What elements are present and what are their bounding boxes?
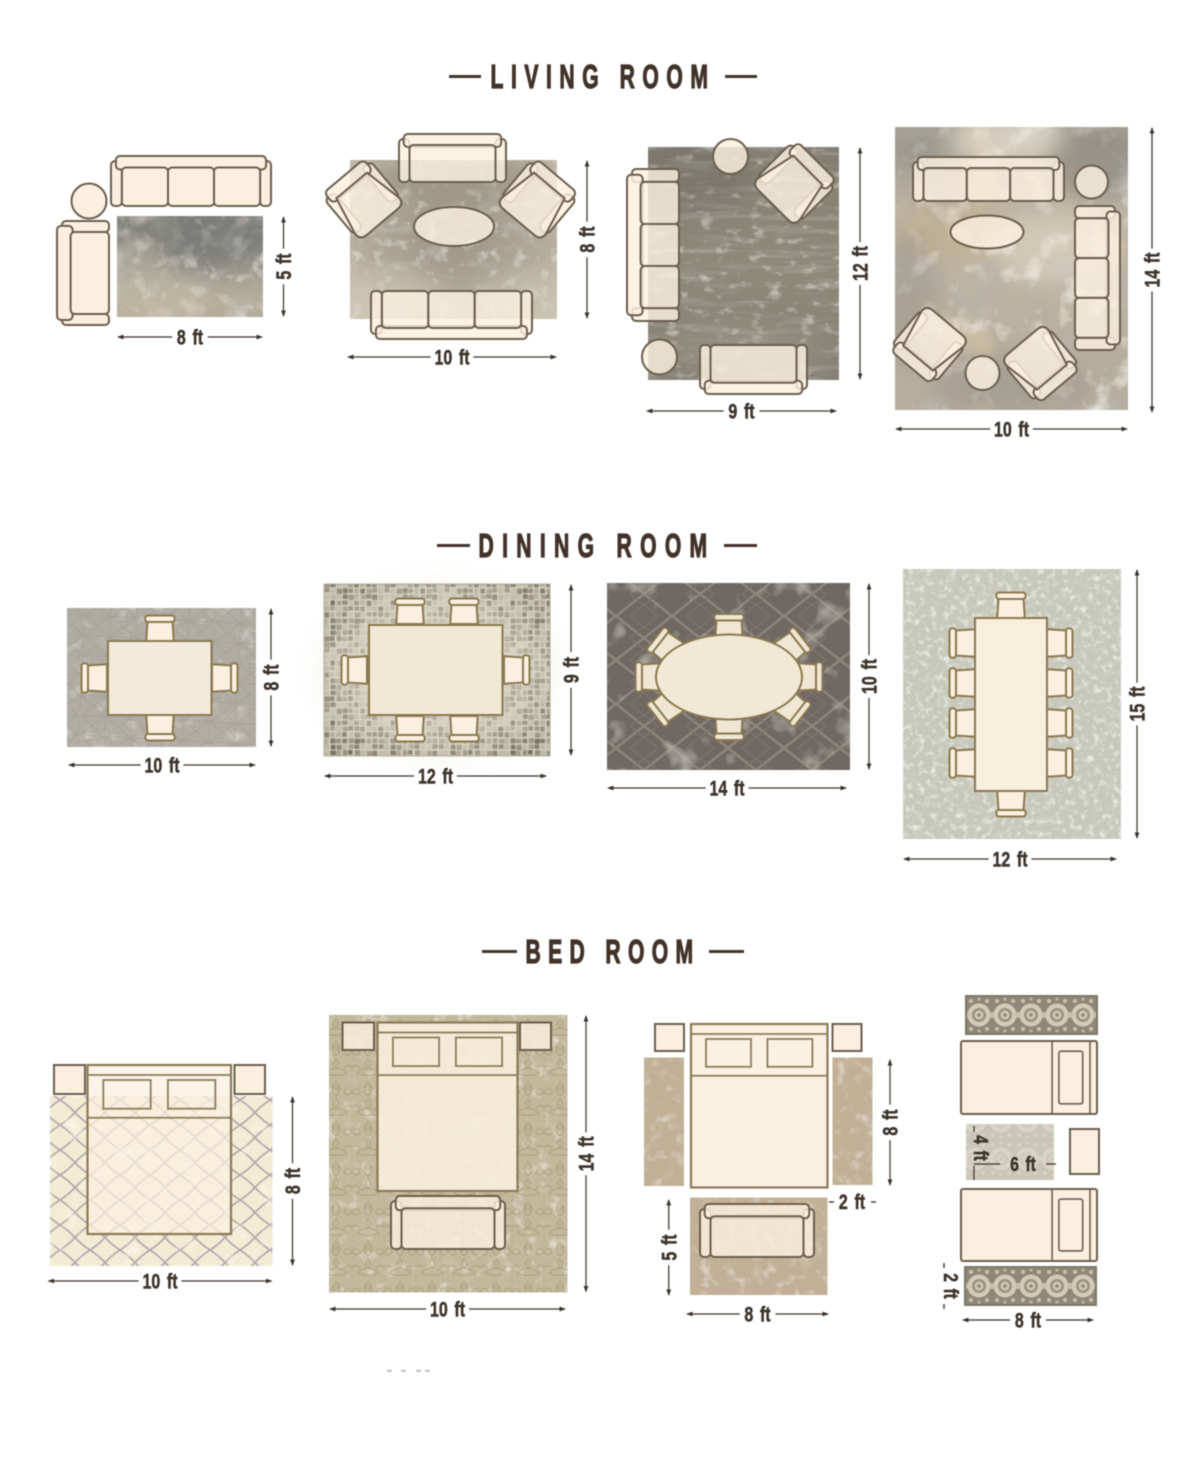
svg-text:DINING ROOM: DINING ROOM xyxy=(479,527,716,564)
svg-text:10 ft: 10 ft xyxy=(434,345,469,369)
svg-text:12 ft: 12 ft xyxy=(418,764,453,788)
svg-text:8 ft: 8 ft xyxy=(878,1109,902,1135)
svg-text:12 ft: 12 ft xyxy=(992,847,1027,871)
svg-text:6 ft: 6 ft xyxy=(1010,1153,1036,1176)
svg-text:9 ft: 9 ft xyxy=(559,657,583,683)
svg-text:8 ft: 8 ft xyxy=(1015,1308,1041,1332)
svg-text:2 ft: 2 ft xyxy=(939,1273,962,1299)
svg-text:8 ft: 8 ft xyxy=(744,1302,770,1326)
svg-text:8 ft: 8 ft xyxy=(575,226,599,252)
svg-text:10 ft: 10 ft xyxy=(142,1269,177,1293)
svg-text:9 ft: 9 ft xyxy=(728,399,754,423)
svg-text:8 ft: 8 ft xyxy=(177,325,203,349)
svg-text:2 ft: 2 ft xyxy=(839,1190,865,1214)
svg-text:5 ft: 5 ft xyxy=(272,253,296,279)
svg-text:8 ft: 8 ft xyxy=(259,664,283,690)
svg-text:10 ft: 10 ft xyxy=(994,417,1029,441)
svg-text:5 ft: 5 ft xyxy=(657,1234,681,1260)
svg-text:BED ROOM: BED ROOM xyxy=(526,933,701,970)
svg-text:LIVING ROOM: LIVING ROOM xyxy=(491,58,716,95)
svg-text:15 ft: 15 ft xyxy=(1125,686,1149,721)
svg-text:14 ft: 14 ft xyxy=(574,1136,598,1171)
svg-text:14 ft: 14 ft xyxy=(1140,252,1164,287)
svg-text:4 ft: 4 ft xyxy=(969,1135,992,1161)
svg-text:14 ft: 14 ft xyxy=(709,776,744,800)
svg-text:10 ft: 10 ft xyxy=(430,1297,465,1321)
svg-text:12 ft: 12 ft xyxy=(848,246,872,281)
svg-text:8 ft: 8 ft xyxy=(281,1168,305,1194)
svg-text:10 ft: 10 ft xyxy=(857,659,881,694)
svg-text:10 ft: 10 ft xyxy=(144,753,179,777)
